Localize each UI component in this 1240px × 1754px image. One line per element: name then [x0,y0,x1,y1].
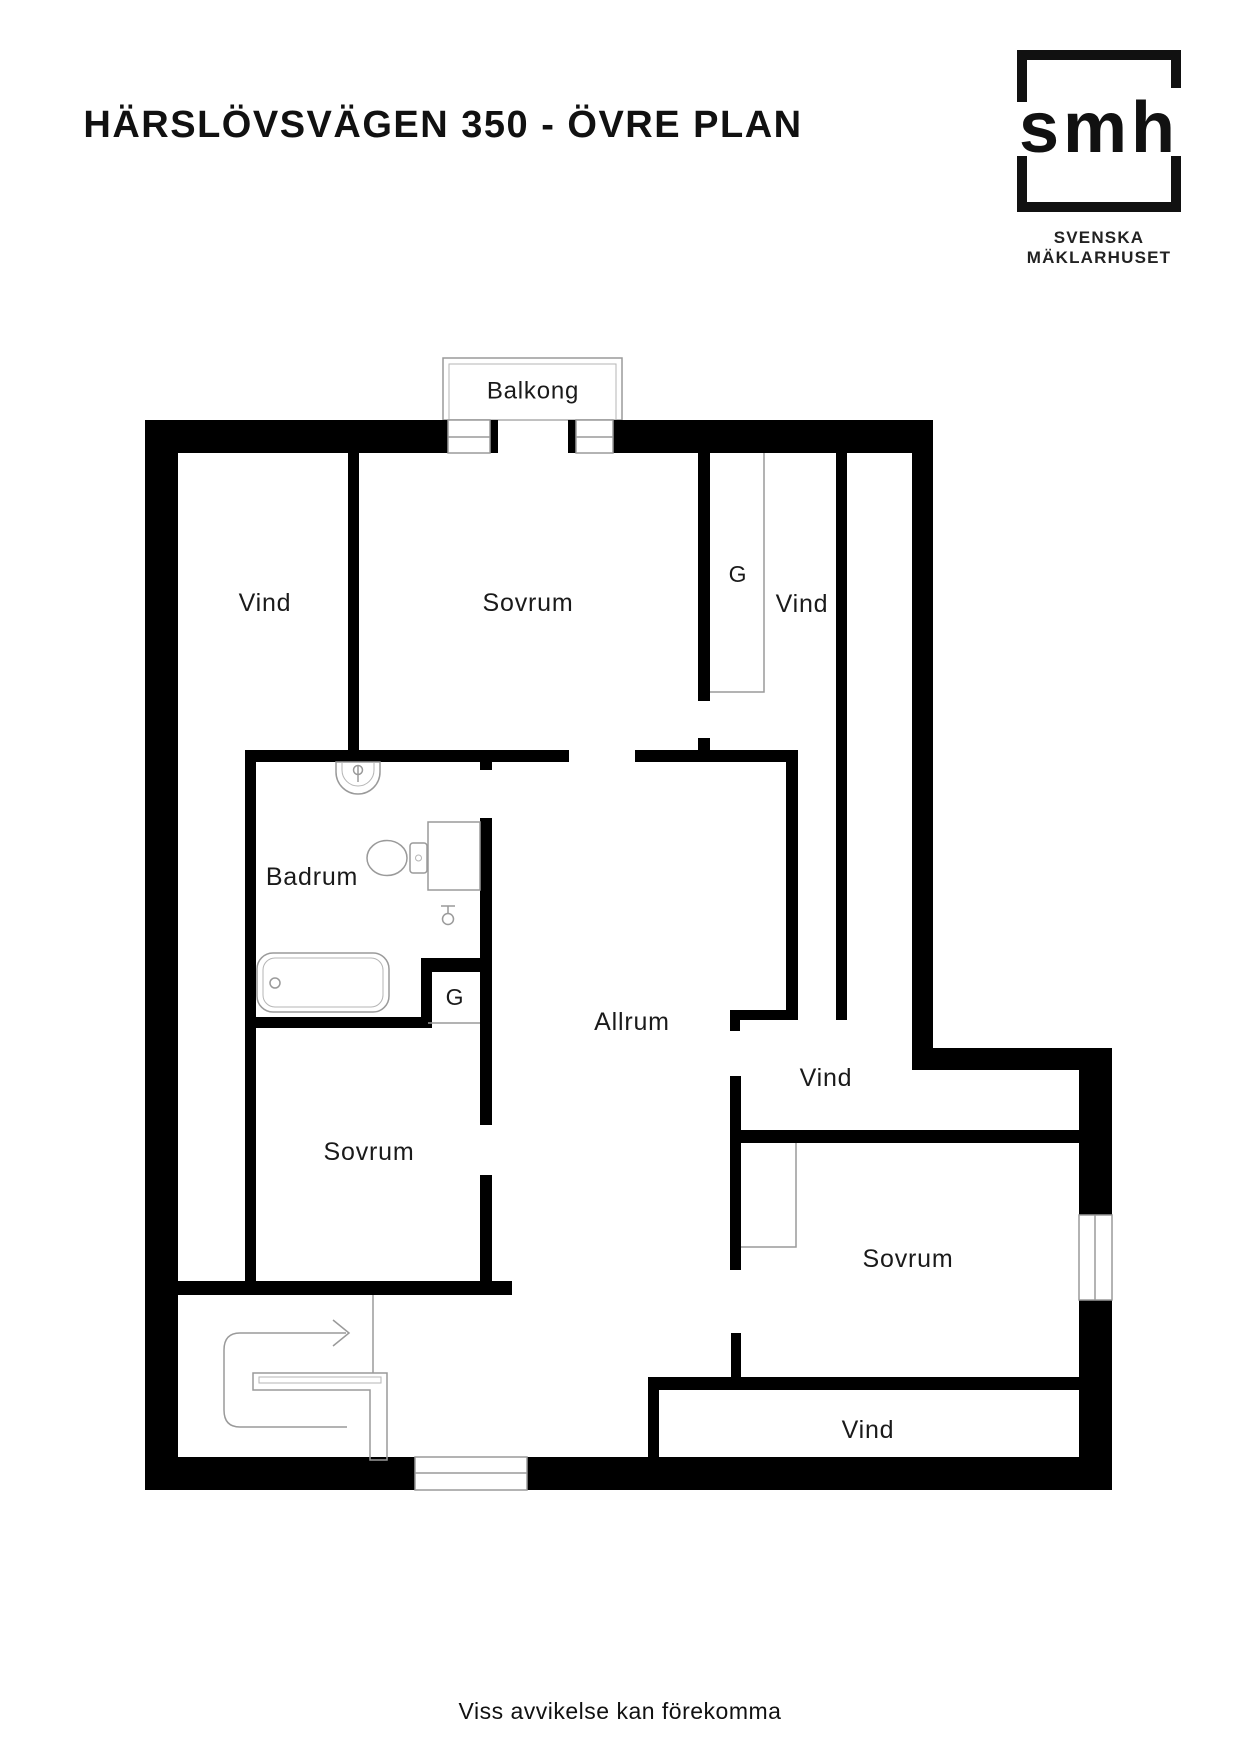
faucet-icon [441,906,455,925]
wall-bath-bottom [256,1017,432,1028]
wall-stair-top [178,1281,512,1295]
wall-right-lower-b [1079,1300,1112,1457]
wall-hall-right [635,750,798,762]
room-label-vind-top-left: Vind [239,589,292,617]
wall-bottom-left [145,1457,415,1490]
room-label-vind-mid-right: Vind [800,1064,853,1092]
wall-top-stub2 [568,420,576,453]
wall-c [730,1076,741,1270]
room-label-sovrum-top: Sovrum [483,589,574,617]
wall-a-stub [730,1020,740,1031]
wall-right-upper [912,420,933,1070]
wall-bath-left [245,750,256,1283]
toilet-icon [367,841,427,876]
wall-hall-upper [480,818,492,1125]
bathtub-icon [257,953,389,1012]
wall-d [741,1130,1079,1143]
closet-line-sovrum-right [741,1143,796,1247]
direction-arrow-icon [224,1333,347,1427]
balcony-window-left [448,420,490,453]
right-window [1079,1215,1112,1300]
bottom-window [415,1457,527,1490]
wall-hall-lower [480,1175,492,1293]
room-label-vind-bottom: Vind [842,1416,895,1444]
wall-right-lower-a [1079,1048,1112,1215]
vanity-counter [428,822,480,890]
wall-top-left [145,420,448,453]
room-label-vind-top-right: Vind [776,590,829,618]
wall-bottom-right [527,1457,1112,1490]
wall-e-connector [648,1390,659,1457]
wall-door-jamb [698,738,710,752]
room-label-badrum: Badrum [266,863,358,891]
wall-left [145,420,178,1490]
wall-top-right [613,420,933,453]
room-label-sovrum-right: Sovrum [863,1245,954,1273]
balcony-window-right [576,420,613,453]
wall-a-horizontal [730,1010,798,1020]
wall-c-stub [731,1333,741,1377]
room-label-garderob-top: G [729,561,748,587]
sink-icon [336,762,380,794]
room-label-garderob-badrum: G [446,984,465,1010]
wall-closet-top-right [698,453,710,701]
wall-a-vertical [786,762,798,1010]
floorplan-canvas: smh [0,0,1240,1754]
stairs-icon [224,1320,387,1460]
disclaimer-text: Viss avvikelse kan förekomma [0,1698,1240,1725]
room-label-allrum: Allrum [594,1008,670,1036]
wall-vind-sovrum [348,453,359,750]
smh-logo-icon: smh [1012,55,1186,207]
room-label-balkong: Balkong [487,378,579,405]
wall-top-stub1 [490,420,498,453]
wall-b [836,453,847,1020]
wall-g2-top [421,958,480,972]
logo-mark-text: smh [1019,88,1179,168]
wall-e [648,1377,1079,1390]
room-label-sovrum-left: Sovrum [324,1138,415,1166]
wall-stub-bath [480,762,492,770]
wall-hall-left [245,750,569,762]
